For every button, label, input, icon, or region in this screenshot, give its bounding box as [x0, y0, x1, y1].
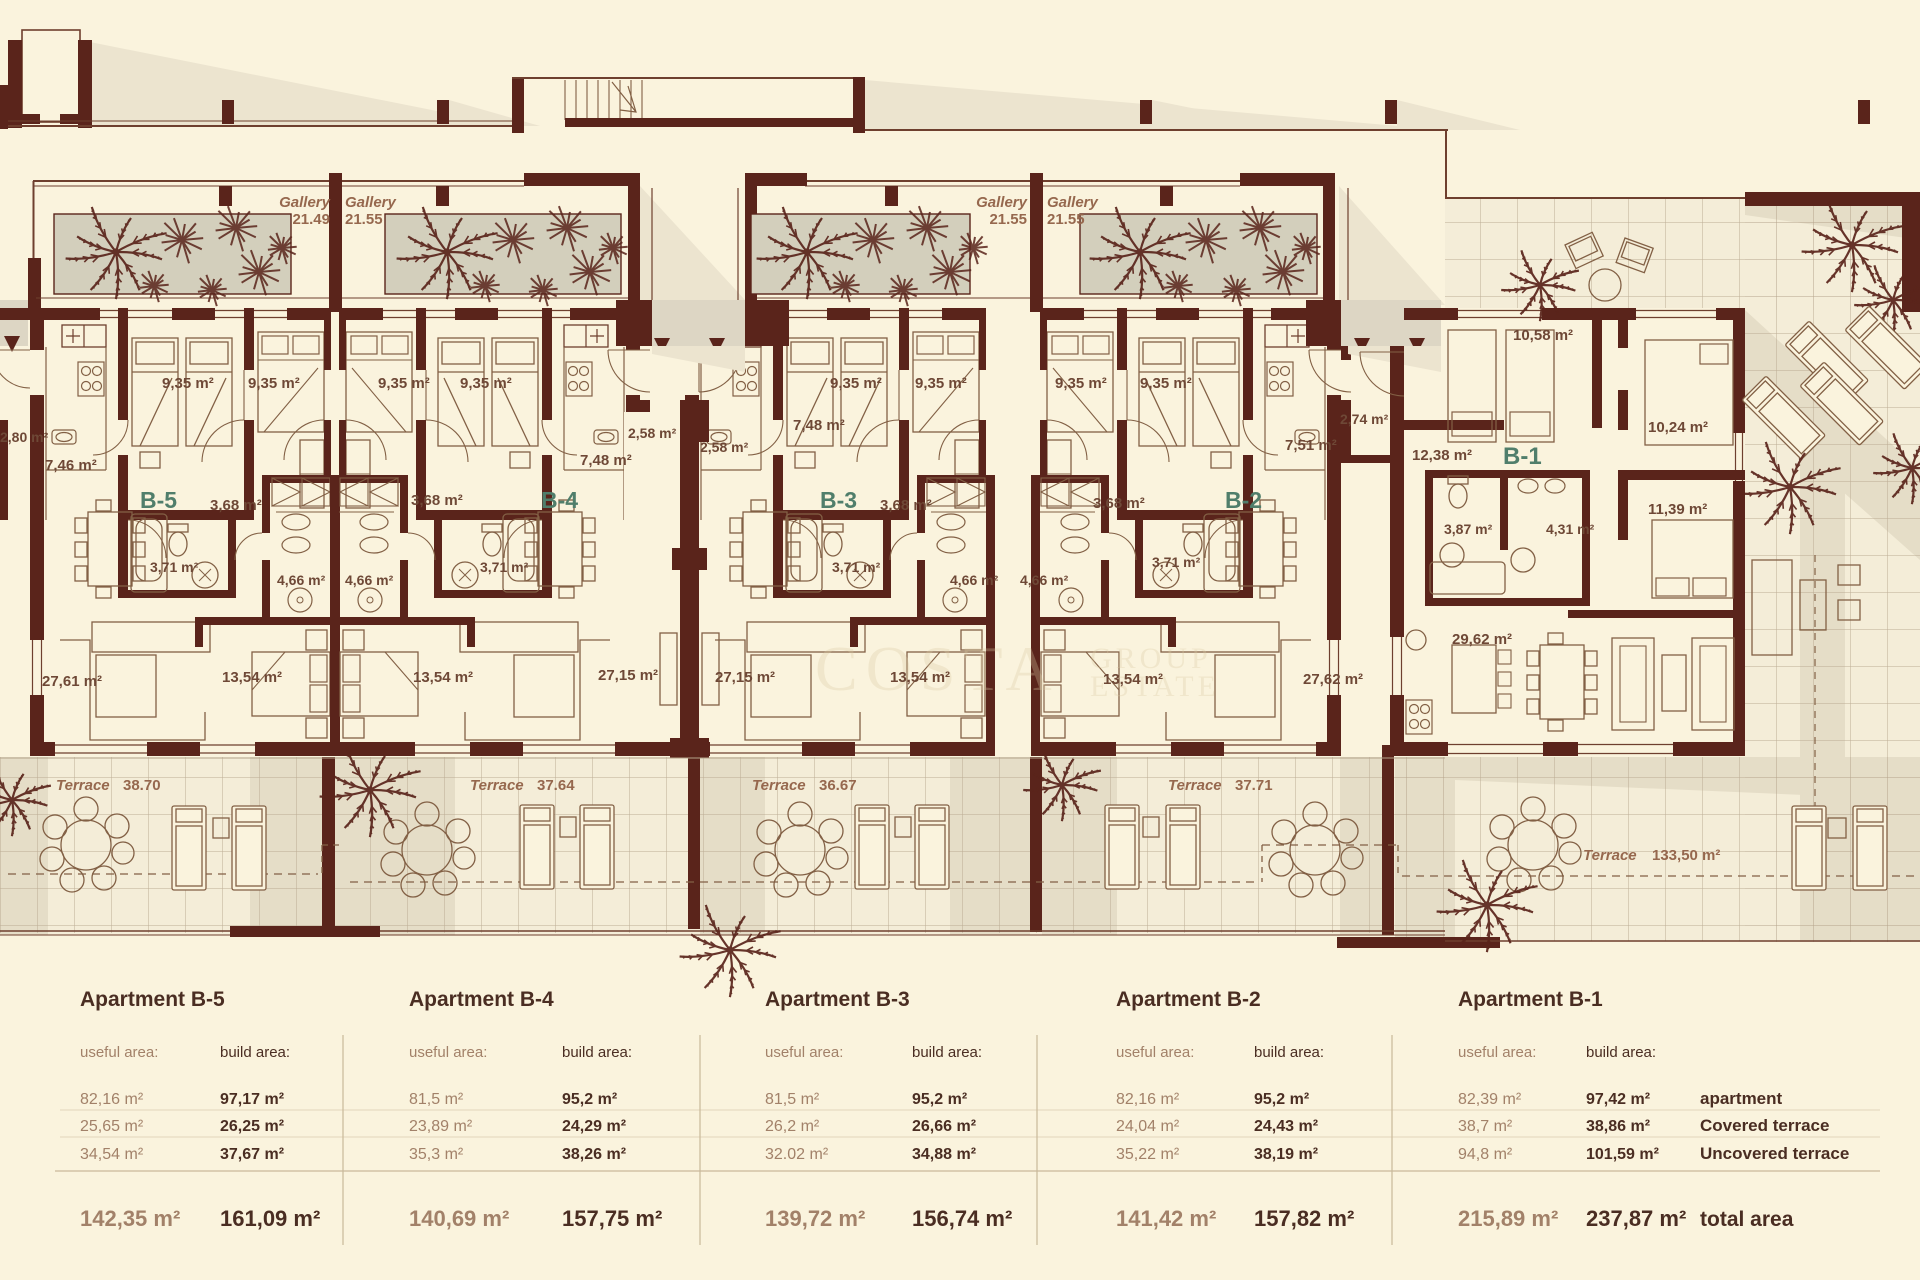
svg-text:10,24 m²: 10,24 m² [1648, 419, 1708, 436]
svg-text:13,54 m²: 13,54 m² [413, 669, 473, 686]
svg-text:3,71 m²: 3,71 m² [832, 559, 881, 575]
svg-text:141,42 m²: 141,42 m² [1116, 1206, 1216, 1231]
svg-text:26,25 m²: 26,25 m² [220, 1118, 284, 1135]
svg-text:Gallery: Gallery [976, 194, 1028, 211]
svg-text:3,68 m²: 3,68 m² [210, 497, 262, 514]
svg-text:3,71 m²: 3,71 m² [150, 559, 199, 575]
svg-text:36.67: 36.67 [819, 777, 857, 794]
svg-text:useful area:: useful area: [765, 1044, 843, 1061]
svg-text:Terrace: Terrace [470, 777, 524, 794]
svg-text:95,2 m²: 95,2 m² [912, 1091, 967, 1108]
svg-text:23,89 m²: 23,89 m² [409, 1118, 473, 1135]
svg-text:95,2 m²: 95,2 m² [1254, 1091, 1309, 1108]
svg-text:35,3 m²: 35,3 m² [409, 1146, 464, 1163]
svg-text:9,35 m²: 9,35 m² [830, 375, 882, 392]
svg-text:4,66 m²: 4,66 m² [950, 572, 999, 588]
svg-text:Apartment B-2: Apartment B-2 [1116, 988, 1261, 1011]
svg-text:3,87 m²: 3,87 m² [1444, 521, 1493, 537]
svg-text:13,54 m²: 13,54 m² [1103, 671, 1163, 688]
svg-text:35,22 m²: 35,22 m² [1116, 1146, 1180, 1163]
svg-text:9,35 m²: 9,35 m² [248, 375, 300, 392]
svg-text:useful area:: useful area: [1116, 1044, 1194, 1061]
svg-text:133,50 m²: 133,50 m² [1652, 847, 1720, 864]
svg-text:26,66 m²: 26,66 m² [912, 1118, 976, 1135]
svg-text:13,54 m²: 13,54 m² [222, 669, 282, 686]
svg-text:27,15 m²: 27,15 m² [715, 669, 775, 686]
svg-text:useful area:: useful area: [1458, 1044, 1536, 1061]
svg-text:4,66 m²: 4,66 m² [277, 572, 326, 588]
svg-text:215,89 m²: 215,89 m² [1458, 1206, 1558, 1231]
svg-text:4,66 m²: 4,66 m² [345, 572, 394, 588]
svg-text:9,35 m²: 9,35 m² [460, 375, 512, 392]
svg-text:2,58 m²: 2,58 m² [700, 439, 749, 455]
svg-text:9,35 m²: 9,35 m² [1140, 375, 1192, 392]
svg-text:2,58 m²: 2,58 m² [628, 425, 677, 441]
svg-text:7,48 m²: 7,48 m² [793, 417, 845, 434]
svg-text:Terrace: Terrace [752, 777, 806, 794]
svg-text:Covered terrace: Covered terrace [1700, 1116, 1829, 1135]
svg-text:161,09 m²: 161,09 m² [220, 1206, 320, 1231]
svg-text:156,74 m²: 156,74 m² [912, 1206, 1012, 1231]
svg-text:4,31 m²: 4,31 m² [1546, 521, 1595, 537]
svg-text:3,68 m²: 3,68 m² [1093, 495, 1145, 512]
svg-text:Apartment B-3: Apartment B-3 [765, 988, 910, 1011]
svg-text:21.55: 21.55 [1047, 211, 1085, 228]
svg-text:Gallery: Gallery [345, 194, 397, 211]
svg-text:7,46 m²: 7,46 m² [45, 457, 97, 474]
svg-text:38,7 m²: 38,7 m² [1458, 1118, 1513, 1135]
svg-text:3,71 m²: 3,71 m² [1152, 554, 1201, 570]
svg-text:build area:: build area: [562, 1044, 632, 1061]
svg-text:95,2 m²: 95,2 m² [562, 1091, 617, 1108]
svg-text:3,68 m²: 3,68 m² [411, 492, 463, 509]
svg-text:29,62 m²: 29,62 m² [1452, 631, 1512, 648]
svg-text:237,87 m²: 237,87 m² [1586, 1206, 1686, 1231]
svg-text:Apartment B-4: Apartment B-4 [409, 988, 554, 1011]
svg-text:7,48 m²: 7,48 m² [580, 452, 632, 469]
svg-text:38.70: 38.70 [123, 777, 161, 794]
svg-text:useful area:: useful area: [80, 1044, 158, 1061]
svg-text:82,16 m²: 82,16 m² [1116, 1091, 1180, 1108]
svg-text:3,68 m²: 3,68 m² [880, 497, 932, 514]
svg-text:81,5 m²: 81,5 m² [765, 1091, 820, 1108]
svg-text:B-3: B-3 [820, 487, 857, 513]
svg-text:81,5 m²: 81,5 m² [409, 1091, 464, 1108]
svg-text:27,62 m²: 27,62 m² [1303, 671, 1363, 688]
svg-text:7,51 m²: 7,51 m² [1285, 437, 1337, 454]
svg-text:26,2 m²: 26,2 m² [765, 1118, 820, 1135]
svg-text:apartment: apartment [1700, 1089, 1783, 1108]
svg-text:build area:: build area: [912, 1044, 982, 1061]
svg-text:B-4: B-4 [541, 487, 578, 513]
svg-text:101,59 m²: 101,59 m² [1586, 1146, 1659, 1163]
svg-text:34,54 m²: 34,54 m² [80, 1146, 144, 1163]
svg-text:9,35 m²: 9,35 m² [162, 375, 214, 392]
svg-text:9,35 m²: 9,35 m² [1055, 375, 1107, 392]
svg-text:Uncovered terrace: Uncovered terrace [1700, 1144, 1849, 1163]
svg-text:24,04 m²: 24,04 m² [1116, 1118, 1180, 1135]
svg-text:32.02 m²: 32.02 m² [765, 1146, 829, 1163]
svg-text:27,61 m²: 27,61 m² [42, 673, 102, 690]
svg-text:Terrace: Terrace [1168, 777, 1222, 794]
svg-text:37,67 m²: 37,67 m² [220, 1146, 284, 1163]
svg-text:Gallery: Gallery [279, 194, 331, 211]
svg-text:B-2: B-2 [1225, 487, 1262, 513]
svg-text:Gallery: Gallery [1047, 194, 1099, 211]
svg-text:B-5: B-5 [140, 487, 177, 513]
svg-text:21.55: 21.55 [345, 211, 383, 228]
svg-text:142,35 m²: 142,35 m² [80, 1206, 180, 1231]
svg-text:82,16 m²: 82,16 m² [80, 1091, 144, 1108]
svg-text:useful area:: useful area: [409, 1044, 487, 1061]
svg-text:13,54 m²: 13,54 m² [890, 669, 950, 686]
svg-text:3,71 m²: 3,71 m² [480, 559, 529, 575]
svg-text:27,15 m²: 27,15 m² [598, 667, 658, 684]
svg-text:38,19 m²: 38,19 m² [1254, 1146, 1318, 1163]
svg-text:140,69 m²: 140,69 m² [409, 1206, 509, 1231]
svg-text:build area:: build area: [220, 1044, 290, 1061]
svg-text:Terrace: Terrace [56, 777, 110, 794]
svg-text:4,66 m²: 4,66 m² [1020, 572, 1069, 588]
svg-text:139,72 m²: 139,72 m² [765, 1206, 865, 1231]
svg-text:Apartment B-1: Apartment B-1 [1458, 988, 1603, 1011]
svg-text:9,35 m²: 9,35 m² [915, 375, 967, 392]
svg-text:12,38 m²: 12,38 m² [1412, 447, 1472, 464]
svg-text:24,29 m²: 24,29 m² [562, 1118, 626, 1135]
svg-text:97,42 m²: 97,42 m² [1586, 1091, 1650, 1108]
svg-text:94,8 m²: 94,8 m² [1458, 1146, 1513, 1163]
svg-text:2,80 m²: 2,80 m² [0, 429, 49, 445]
svg-text:38,26 m²: 38,26 m² [562, 1146, 626, 1163]
svg-text:Terrace: Terrace [1583, 847, 1637, 864]
svg-text:157,82 m²: 157,82 m² [1254, 1206, 1354, 1231]
svg-text:2,74 m²: 2,74 m² [1340, 411, 1389, 427]
svg-text:97,17 m²: 97,17 m² [220, 1091, 284, 1108]
svg-text:157,75 m²: 157,75 m² [562, 1206, 662, 1231]
svg-text:34,88 m²: 34,88 m² [912, 1146, 976, 1163]
svg-text:10,58 m²: 10,58 m² [1513, 327, 1573, 344]
svg-text:11,39 m²: 11,39 m² [1648, 501, 1707, 518]
svg-text:build area:: build area: [1254, 1044, 1324, 1061]
svg-text:total area: total area [1700, 1208, 1794, 1231]
svg-text:37.71: 37.71 [1235, 777, 1273, 794]
svg-text:38,86 m²: 38,86 m² [1586, 1118, 1650, 1135]
svg-text:Apartment B-5: Apartment B-5 [80, 988, 225, 1011]
svg-text:24,43 m²: 24,43 m² [1254, 1118, 1318, 1135]
svg-text:37.64: 37.64 [537, 777, 575, 794]
svg-text:25,65 m²: 25,65 m² [80, 1118, 144, 1135]
svg-text:21.49: 21.49 [292, 211, 330, 228]
svg-text:82,39 m²: 82,39 m² [1458, 1091, 1522, 1108]
svg-text:B-1: B-1 [1503, 443, 1542, 470]
svg-text:build area:: build area: [1586, 1044, 1656, 1061]
svg-text:21.55: 21.55 [989, 211, 1027, 228]
svg-text:9,35 m²: 9,35 m² [378, 375, 430, 392]
